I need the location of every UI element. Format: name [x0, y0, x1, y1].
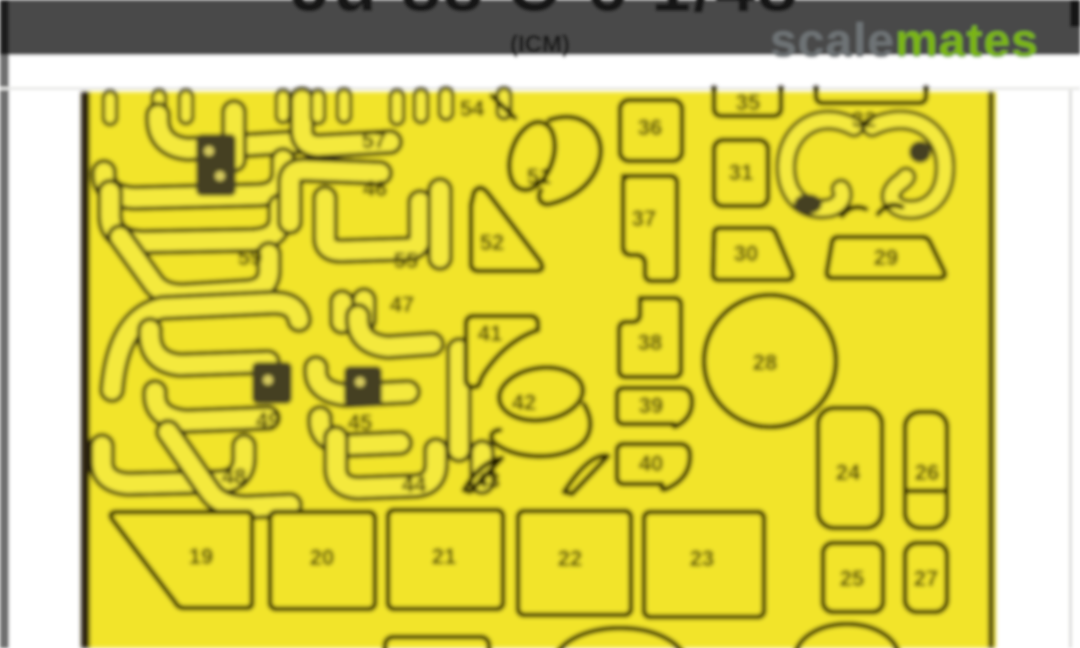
- svg-text:40: 40: [639, 451, 663, 476]
- svg-text:47: 47: [390, 292, 414, 317]
- svg-text:19: 19: [189, 544, 213, 569]
- svg-text:39: 39: [639, 393, 663, 418]
- svg-text:21: 21: [432, 544, 456, 569]
- svg-text:59: 59: [238, 245, 262, 270]
- svg-text:22: 22: [558, 546, 582, 571]
- svg-text:29: 29: [874, 245, 898, 270]
- svg-text:20: 20: [310, 545, 334, 570]
- svg-text:28: 28: [753, 350, 777, 375]
- svg-text:42: 42: [512, 390, 536, 415]
- svg-text:27: 27: [914, 566, 938, 591]
- svg-text:36: 36: [638, 115, 662, 140]
- svg-text:54: 54: [460, 96, 485, 121]
- svg-text:31: 31: [729, 160, 753, 185]
- svg-text:38: 38: [638, 330, 662, 355]
- svg-text:35: 35: [736, 90, 760, 115]
- svg-text:30: 30: [734, 241, 758, 266]
- svg-text:46: 46: [363, 176, 387, 201]
- svg-text:51: 51: [527, 164, 551, 189]
- svg-text:45: 45: [348, 410, 372, 435]
- svg-text:26: 26: [915, 460, 939, 485]
- svg-text:23: 23: [690, 546, 714, 571]
- svg-text:25: 25: [840, 566, 864, 591]
- svg-text:44: 44: [402, 472, 427, 497]
- svg-text:(ICM): (ICM): [510, 31, 570, 58]
- svg-text:32: 32: [852, 107, 876, 132]
- svg-text:41: 41: [478, 321, 502, 346]
- svg-text:24: 24: [836, 460, 861, 485]
- svg-text:57: 57: [362, 128, 386, 153]
- svg-text:52: 52: [480, 230, 504, 255]
- svg-text:48: 48: [222, 464, 246, 489]
- svg-text:37: 37: [632, 206, 656, 231]
- svg-text:scalemates: scalemates: [770, 15, 1039, 68]
- svg-text:Ju 88 C-6 1/48: Ju 88 C-6 1/48: [291, 0, 799, 27]
- svg-text:55: 55: [394, 248, 418, 273]
- svg-text:49: 49: [256, 408, 280, 433]
